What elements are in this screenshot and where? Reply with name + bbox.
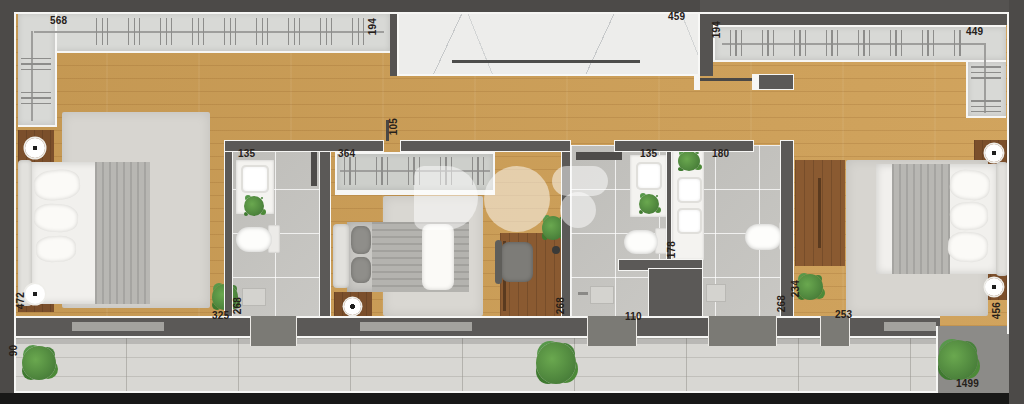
dresser-handle (818, 178, 821, 248)
wall-outline (14, 12, 1010, 14)
desk-chair (501, 242, 533, 282)
floor-plan: 568 194 459 194 449 105 135 364 135 180 … (0, 0, 1024, 404)
measure-268-bath1: 268 (232, 297, 243, 314)
hangers-icon (21, 58, 51, 122)
towel-rack-icon (311, 150, 317, 186)
wall (614, 140, 754, 152)
measure-234: 234 (790, 280, 801, 297)
measure-459: 459 (668, 11, 685, 22)
watermark-logo (560, 192, 596, 228)
measure-268-bath3: 268 (776, 295, 787, 312)
facade-edge (0, 393, 1024, 404)
measure-364: 364 (338, 148, 355, 159)
measure-178: 178 (666, 241, 677, 258)
table-lamp-icon (25, 284, 45, 304)
pillow (947, 231, 989, 263)
wall (319, 140, 331, 336)
measure-449: 449 (966, 26, 983, 37)
hangers-icon (96, 18, 382, 45)
bed-throw (422, 224, 454, 290)
marble-floor-area (397, 8, 700, 76)
hangers-icon (971, 66, 1001, 114)
pillow (351, 257, 371, 283)
watermark-logo (414, 166, 478, 230)
plant-icon (536, 342, 576, 384)
measure-456: 456 (991, 302, 1002, 319)
outer-wall-right (1009, 0, 1024, 404)
wall (758, 74, 794, 90)
desk-chair-back (495, 240, 502, 284)
wall (400, 140, 571, 152)
toilet-icon (745, 224, 782, 250)
hangers-icon (730, 30, 962, 56)
toilet-icon (236, 227, 272, 252)
measure-194-left: 194 (367, 18, 378, 35)
pillow (949, 168, 991, 201)
door-jamb (694, 74, 700, 90)
plant-icon (244, 196, 264, 216)
plant-icon (678, 151, 700, 171)
measure-90: 90 (8, 345, 19, 357)
door-jamb (752, 74, 758, 90)
wall (648, 268, 703, 318)
measure-268-mid: 268 (555, 297, 566, 314)
window (884, 322, 936, 331)
table-lamp-icon (25, 138, 45, 158)
pillow (33, 202, 79, 233)
bench-line (452, 60, 640, 63)
measure-253: 253 (835, 309, 852, 320)
balcony-door (708, 316, 777, 346)
table-lamp-icon (344, 298, 361, 315)
measure-1499: 1499 (956, 378, 979, 389)
plant-icon (639, 194, 659, 214)
door-leaf (700, 78, 752, 81)
shower-drain (706, 284, 726, 302)
pillow (351, 226, 371, 254)
desk-cup (552, 246, 560, 254)
pillow (949, 201, 989, 232)
sink-icon (677, 177, 702, 203)
bed-headboard (333, 224, 349, 288)
window (360, 322, 472, 331)
bed-blanket (372, 222, 469, 292)
wall (390, 13, 397, 76)
measure-325: 325 (212, 310, 229, 321)
balcony-door (250, 316, 297, 346)
shower-drain (242, 288, 266, 306)
sink-icon (636, 162, 662, 190)
sink-icon (241, 165, 269, 193)
measure-135-bath1: 135 (238, 148, 255, 159)
shower-head-icon (578, 292, 588, 295)
plant-icon (22, 346, 56, 380)
pillow (35, 235, 76, 263)
toilet-icon (624, 230, 658, 254)
balcony-door (820, 316, 850, 346)
wall-shadow (14, 338, 936, 344)
measure-568: 568 (50, 15, 67, 26)
measure-135-bath2: 135 (640, 148, 657, 159)
bed-blanket (892, 164, 950, 274)
measure-472: 472 (15, 292, 26, 309)
shelf-icon (576, 152, 622, 160)
measure-105: 105 (388, 118, 399, 135)
sink-icon (677, 208, 702, 234)
window (72, 322, 164, 331)
table-lamp-icon (985, 278, 1003, 296)
measure-110: 110 (625, 311, 642, 322)
measure-180: 180 (712, 148, 729, 159)
shower-drain (590, 286, 614, 304)
wall-outline (14, 12, 16, 393)
watermark-logo (484, 166, 550, 232)
table-lamp-icon (985, 144, 1003, 162)
plant-icon (938, 340, 978, 380)
bed-blanket (95, 162, 150, 304)
measure-194-right: 194 (711, 21, 722, 38)
balcony-floor (14, 338, 936, 393)
